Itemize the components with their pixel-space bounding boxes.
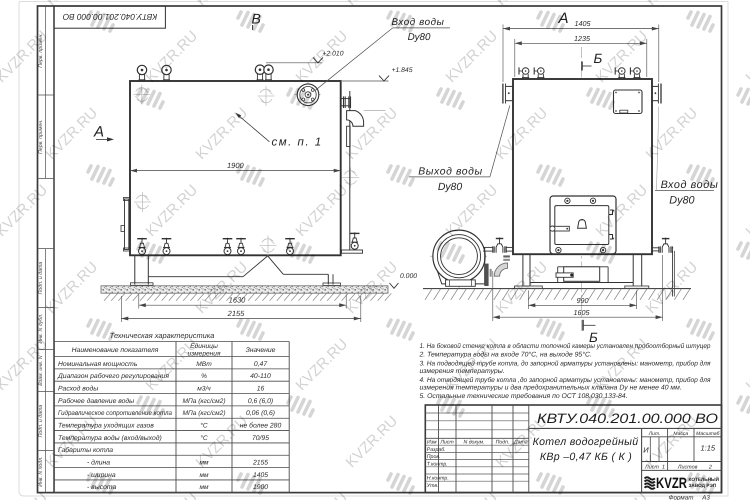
svg-text:Dy80: Dy80 (408, 32, 431, 43)
svg-text:Котел водогрейный: Котел водогрейный (533, 436, 639, 448)
svg-text:Лист: Лист (439, 440, 454, 446)
svg-text:990: 990 (577, 296, 589, 305)
svg-text:2. Температура воды на входе: 2. Температура воды на входе 70°С, на вы… (419, 352, 592, 359)
svg-text:1235: 1235 (574, 34, 591, 43)
svg-text:°С: °С (200, 423, 208, 430)
svg-text:Н.контр.: Н.контр. (427, 476, 449, 482)
svg-text:см. п. 1: см. п. 1 (272, 137, 323, 149)
svg-text:KVZR.RU: KVZR.RU (643, 259, 702, 318)
svg-text:1:15: 1:15 (700, 444, 715, 453)
svg-text:Изм: Изм (427, 440, 437, 446)
svg-text:Выход воды: Выход воды (418, 166, 482, 177)
svg-text:Взам. инв. N: Взам. инв. N (38, 355, 44, 385)
svg-text:Листов: Листов (677, 464, 698, 470)
svg-text:2155: 2155 (252, 460, 268, 467)
svg-text:Наименование показателя: Наименование показателя (72, 347, 159, 354)
svg-text:1405: 1405 (575, 19, 592, 28)
svg-text:Т.контр.: Т.контр. (427, 461, 448, 467)
svg-text:Расход воды: Расход воды (58, 385, 98, 392)
svg-text:Перв. примен.: Перв. примен. (38, 119, 44, 153)
svg-text:Пров.: Пров. (427, 454, 441, 460)
svg-text:Разраб.: Разраб. (427, 447, 446, 453)
svg-text:KVZR.RU: KVZR.RU (743, 336, 750, 395)
svg-text:Рабочее давление воды: Рабочее давление воды (58, 398, 134, 405)
svg-text:°С: °С (200, 435, 208, 442)
svg-text:0,06 (0,6): 0,06 (0,6) (246, 410, 275, 417)
svg-text:KVZR.RU: KVZR.RU (743, 182, 750, 241)
svg-text:- длина: - длина (87, 460, 110, 467)
svg-text:70/95: 70/95 (252, 435, 269, 442)
svg-text:0,47: 0,47 (254, 361, 267, 368)
svg-text:Dy80: Dy80 (669, 194, 694, 206)
svg-text:МПа (кгс/см2): МПа (кгс/см2) (182, 398, 225, 405)
svg-text:2: 2 (708, 464, 712, 470)
svg-text:KVZR.RU: KVZR.RU (343, 413, 402, 472)
svg-text:Утв.: Утв. (427, 483, 439, 489)
svg-text:KVZR.RU: KVZR.RU (743, 490, 750, 500)
svg-text:МВт: МВт (196, 361, 212, 368)
svg-text:Dy80: Dy80 (438, 182, 462, 193)
svg-text:0.000: 0.000 (400, 273, 417, 280)
svg-text:МПа (кгс/см2): МПа (кгс/см2) (182, 410, 225, 417)
svg-text:Техническая характеристика: Техническая характеристика (110, 331, 215, 340)
svg-text:м3/ч: м3/ч (197, 385, 211, 392)
svg-text:2155: 2155 (227, 309, 246, 318)
svg-text:1: 1 (662, 464, 665, 470)
svg-text:N докум.: N докум. (464, 440, 485, 446)
svg-text:1. На боковой стенке котла в: 1. На боковой стенке котла в области топ… (420, 342, 711, 350)
svg-text:KVZR.RU: KVZR.RU (143, 490, 202, 500)
svg-text:KVZR.RU: KVZR.RU (43, 259, 102, 318)
svg-text:1630: 1630 (229, 296, 247, 305)
svg-text:KVZR.RU: KVZR.RU (43, 105, 102, 164)
svg-text:Масштаб: Масштаб (696, 431, 720, 437)
svg-text:40-110: 40-110 (250, 373, 271, 380)
svg-text:%: % (201, 373, 207, 380)
svg-text:KVZR.RU: KVZR.RU (293, 490, 352, 500)
svg-text:Подп. и дата: Подп. и дата (38, 262, 44, 295)
svg-text:KVZR.RU: KVZR.RU (293, 336, 352, 395)
svg-text:+1.845: +1.845 (392, 67, 413, 74)
svg-text:КВр –0,47 КБ ( К ): КВр –0,47 КБ ( К ) (540, 451, 632, 463)
svg-text:мм: мм (199, 484, 209, 491)
svg-text:1605: 1605 (574, 308, 591, 317)
svg-text:KVZR.RU: KVZR.RU (143, 336, 202, 395)
svg-text:Б: Б (594, 51, 603, 66)
svg-text:Значение: Значение (246, 347, 276, 354)
svg-text:Формат: Формат (668, 494, 693, 500)
svg-text:KVZR.RU: KVZR.RU (743, 28, 750, 87)
svg-text:KVZR: KVZR (656, 475, 687, 492)
svg-text:KVZR.RU: KVZR.RU (593, 490, 652, 500)
svg-text:А3: А3 (701, 494, 710, 500)
svg-text:мм: мм (199, 472, 209, 479)
svg-text:KVZR.RU: KVZR.RU (143, 28, 202, 87)
svg-text:А: А (93, 124, 104, 141)
svg-text:16: 16 (257, 385, 265, 392)
svg-text:KVZR.RU: KVZR.RU (0, 490, 51, 500)
svg-text:Подп. и дата: Подп. и дата (38, 405, 44, 438)
svg-text:KVZR.RU: KVZR.RU (0, 182, 51, 241)
svg-text:Лит.: Лит. (648, 431, 661, 437)
svg-text:Номинальная мощность: Номинальная мощность (58, 361, 138, 368)
svg-text:0,6 (6,0): 0,6 (6,0) (248, 398, 273, 405)
svg-text:KVZR.RU: KVZR.RU (443, 28, 502, 87)
